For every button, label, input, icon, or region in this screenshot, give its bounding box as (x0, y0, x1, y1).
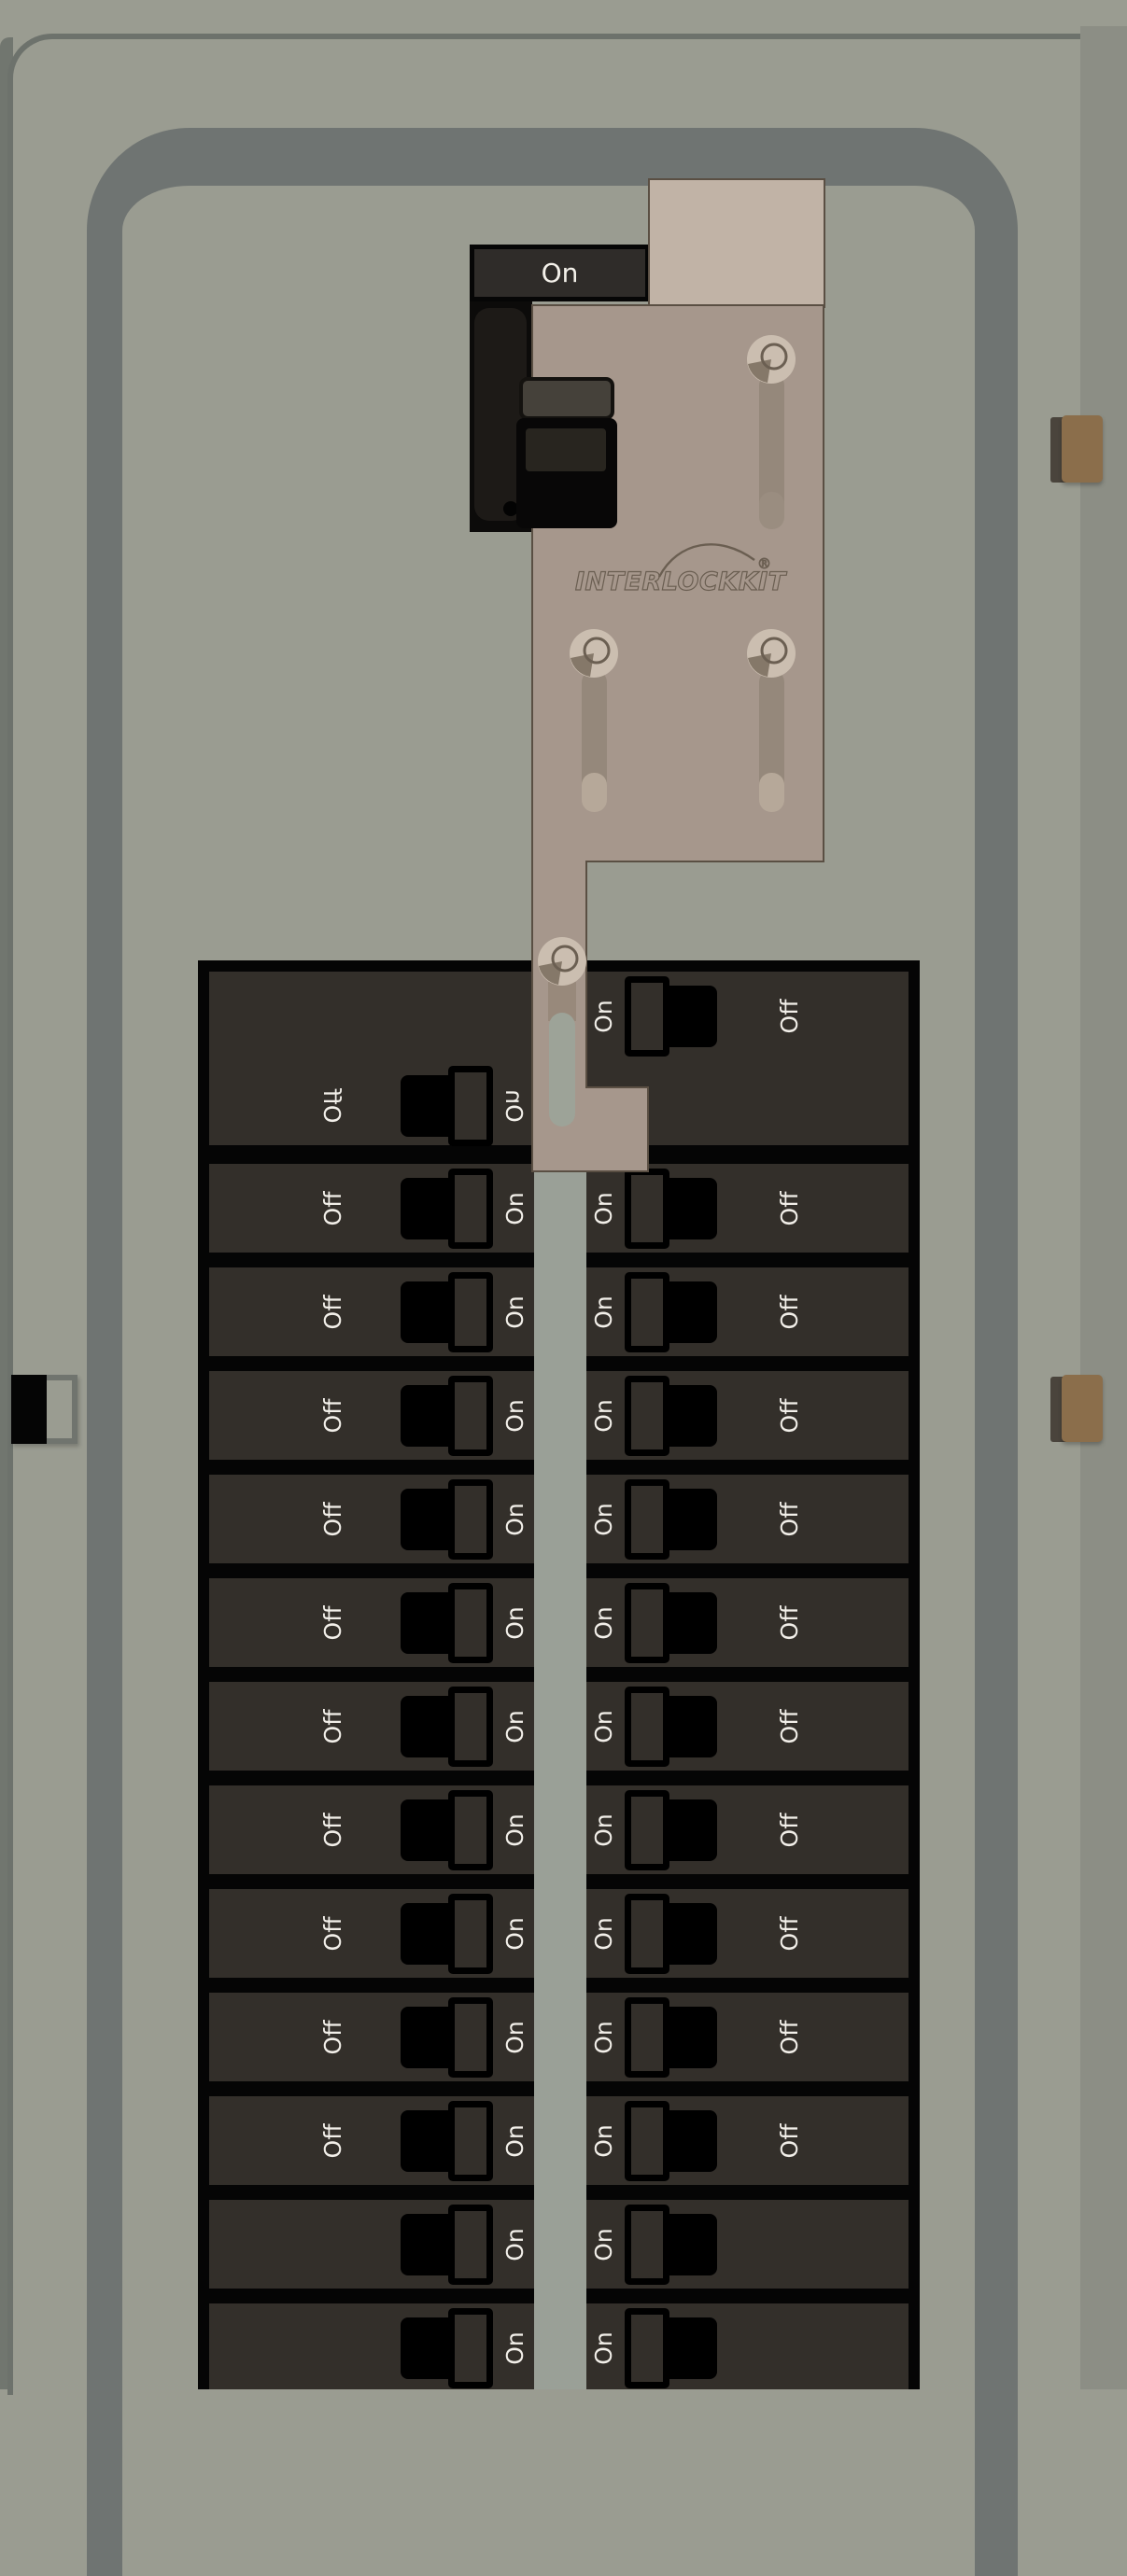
breaker-label-on: On (474, 2331, 555, 2365)
breaker-label-on: On (474, 1710, 555, 1743)
breaker-rocker-frame (625, 1376, 669, 1456)
breaker-rocker-frame (625, 2101, 669, 2181)
logo-registered-mark: ® (757, 555, 771, 572)
breaker-label-off: Off (749, 1917, 829, 1951)
breaker-rocker-frame (625, 1997, 669, 2078)
breaker-rocker-frame (625, 1272, 669, 1352)
breaker-label-off: Off (292, 1710, 373, 1743)
breaker-label-on: On (474, 1295, 555, 1329)
clip-body (1062, 1375, 1103, 1442)
breaker-label-off: Off (292, 1813, 373, 1847)
breaker-handle-right[interactable] (625, 1376, 717, 1456)
breaker-handle-right[interactable] (625, 1997, 717, 2078)
breaker-row: OffOnOnOff (209, 1578, 909, 1667)
breaker-rocker-frame (625, 1894, 669, 1974)
main-breaker-rocker-inset (526, 428, 606, 471)
breaker-rocker-frame (625, 1479, 669, 1560)
interlock-kit-plate-group: INTERLOCKKIT ® (467, 168, 859, 1213)
breaker-panel-illustration: { "main_breaker": { "label": "On" }, "in… (0, 0, 1127, 2389)
breaker-label-on: On (474, 2124, 555, 2158)
breaker-rocker-frame (625, 1583, 669, 1663)
breaker-row: OffOnOnOff (209, 1682, 909, 1771)
breaker-row: OffOnOnOff (209, 1267, 909, 1356)
interlock-backplate (649, 179, 824, 307)
breaker-row: OffOnOnOff (209, 1993, 909, 2081)
panel-side-shade (1080, 26, 1127, 2389)
breaker-label-off: Off (749, 1399, 829, 1433)
breaker-row: OffOnOnOff (209, 1475, 909, 1563)
breaker-label-on: On (474, 1606, 555, 1640)
door-latch-slider[interactable] (11, 1375, 47, 1444)
clip-right-bottom[interactable] (1050, 1375, 1103, 1444)
breaker-label-off: Off (749, 1710, 829, 1743)
breaker-label-on: On (474, 2228, 555, 2261)
breaker-label-off: Off (292, 1295, 373, 1329)
breaker-label-off: Off (749, 1606, 829, 1640)
breaker-handle-right[interactable] (625, 1272, 717, 1352)
breaker-row: OffOnOnOff (209, 1785, 909, 1874)
slot-mid-right-cap (759, 773, 784, 812)
breaker-label-on: On (474, 1813, 555, 1847)
breaker-label-off: Off (749, 2021, 829, 2054)
breaker-handle-right[interactable] (625, 2101, 717, 2181)
breaker-label-off: Off (749, 1503, 829, 1536)
breaker-label-on: On (474, 1399, 555, 1433)
breaker-rocker-frame (625, 1790, 669, 1870)
main-breaker-handle-frame (519, 377, 614, 420)
breaker-label-on: On (474, 1503, 555, 1536)
breaker-row: OffOnOnOff (209, 2096, 909, 2185)
slot-top-right-cap (759, 492, 784, 529)
breaker-rocker-frame (625, 2308, 669, 2388)
breaker-row: OffOnOnOff (209, 1889, 909, 1978)
breaker-label-off: Off (749, 2124, 829, 2158)
breaker-rocker-frame (625, 1687, 669, 1767)
breaker-label-off: Off (292, 2021, 373, 2054)
screw-mid-right (747, 629, 796, 678)
clip-right-top[interactable] (1050, 415, 1103, 484)
breaker-rocker-frame (625, 2205, 669, 2285)
screw-bar (538, 937, 586, 986)
breaker-label-off: Off (292, 1606, 373, 1640)
breaker-label-off: Off (292, 1503, 373, 1536)
logo-text: INTERLOCKKIT (575, 567, 788, 596)
breaker-handle-right[interactable] (625, 1479, 717, 1560)
breaker-handle-right[interactable] (625, 2308, 717, 2388)
clip-body (1062, 415, 1103, 483)
breaker-label-off: Off (292, 1192, 373, 1225)
breaker-label-off: Off (292, 2124, 373, 2158)
bar-slot-cutout (549, 1013, 575, 1127)
breaker-label-on: On (474, 1917, 555, 1951)
breaker-label-off: Off (292, 1089, 373, 1123)
breaker-handle-right[interactable] (625, 1583, 717, 1663)
breaker-label-off: Off (292, 1399, 373, 1433)
breaker-row: OffOnOnOff (209, 1371, 909, 1460)
screw-top-right (747, 335, 796, 384)
screw-mid-left (570, 629, 618, 678)
breaker-label-on: On (474, 2021, 555, 2054)
slot-mid-left-cap (582, 773, 607, 812)
breaker-label-off: Off (749, 1813, 829, 1847)
breaker-handle-right[interactable] (625, 1790, 717, 1870)
breaker-handle-right[interactable] (625, 1894, 717, 1974)
breaker-label-off: Off (292, 1917, 373, 1951)
breaker-row: OnOn (209, 2303, 909, 2389)
breaker-handle-right[interactable] (625, 2205, 717, 2285)
breaker-label-off: Off (749, 1295, 829, 1329)
breaker-row: OnOn (209, 2200, 909, 2289)
breaker-handle-right[interactable] (625, 1687, 717, 1767)
